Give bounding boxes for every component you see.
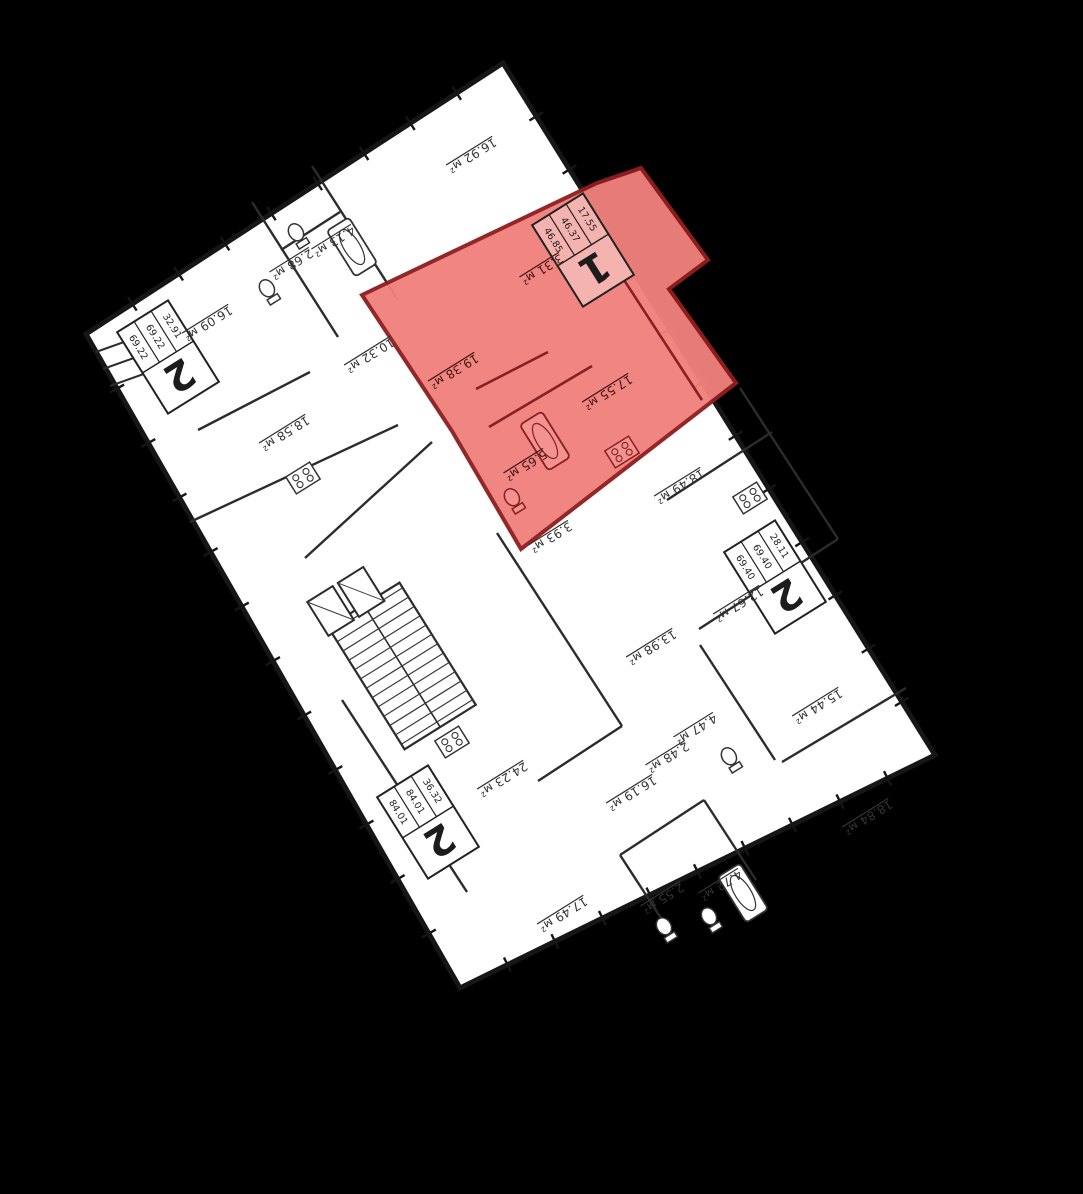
bathtub-icon (718, 863, 769, 923)
floor-plan-svg: 232.9169.2269.22117.5546.3746.85228.1169… (0, 0, 1083, 1194)
toilet-icon (653, 915, 678, 944)
room-area-label: 18.84 м² (841, 797, 895, 838)
floor-plan-canvas: 232.9169.2269.22117.5546.3746.85228.1169… (0, 0, 1083, 1194)
toilet-icon (698, 905, 723, 934)
